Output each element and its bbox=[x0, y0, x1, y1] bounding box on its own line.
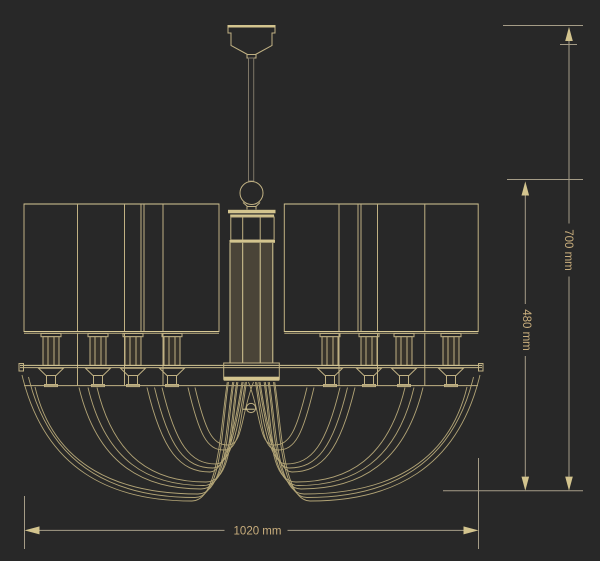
svg-text:1020 mm: 1020 mm bbox=[234, 526, 282, 538]
svg-text:480 mm: 480 mm bbox=[520, 309, 532, 351]
svg-text:700 mm: 700 mm bbox=[562, 229, 574, 271]
